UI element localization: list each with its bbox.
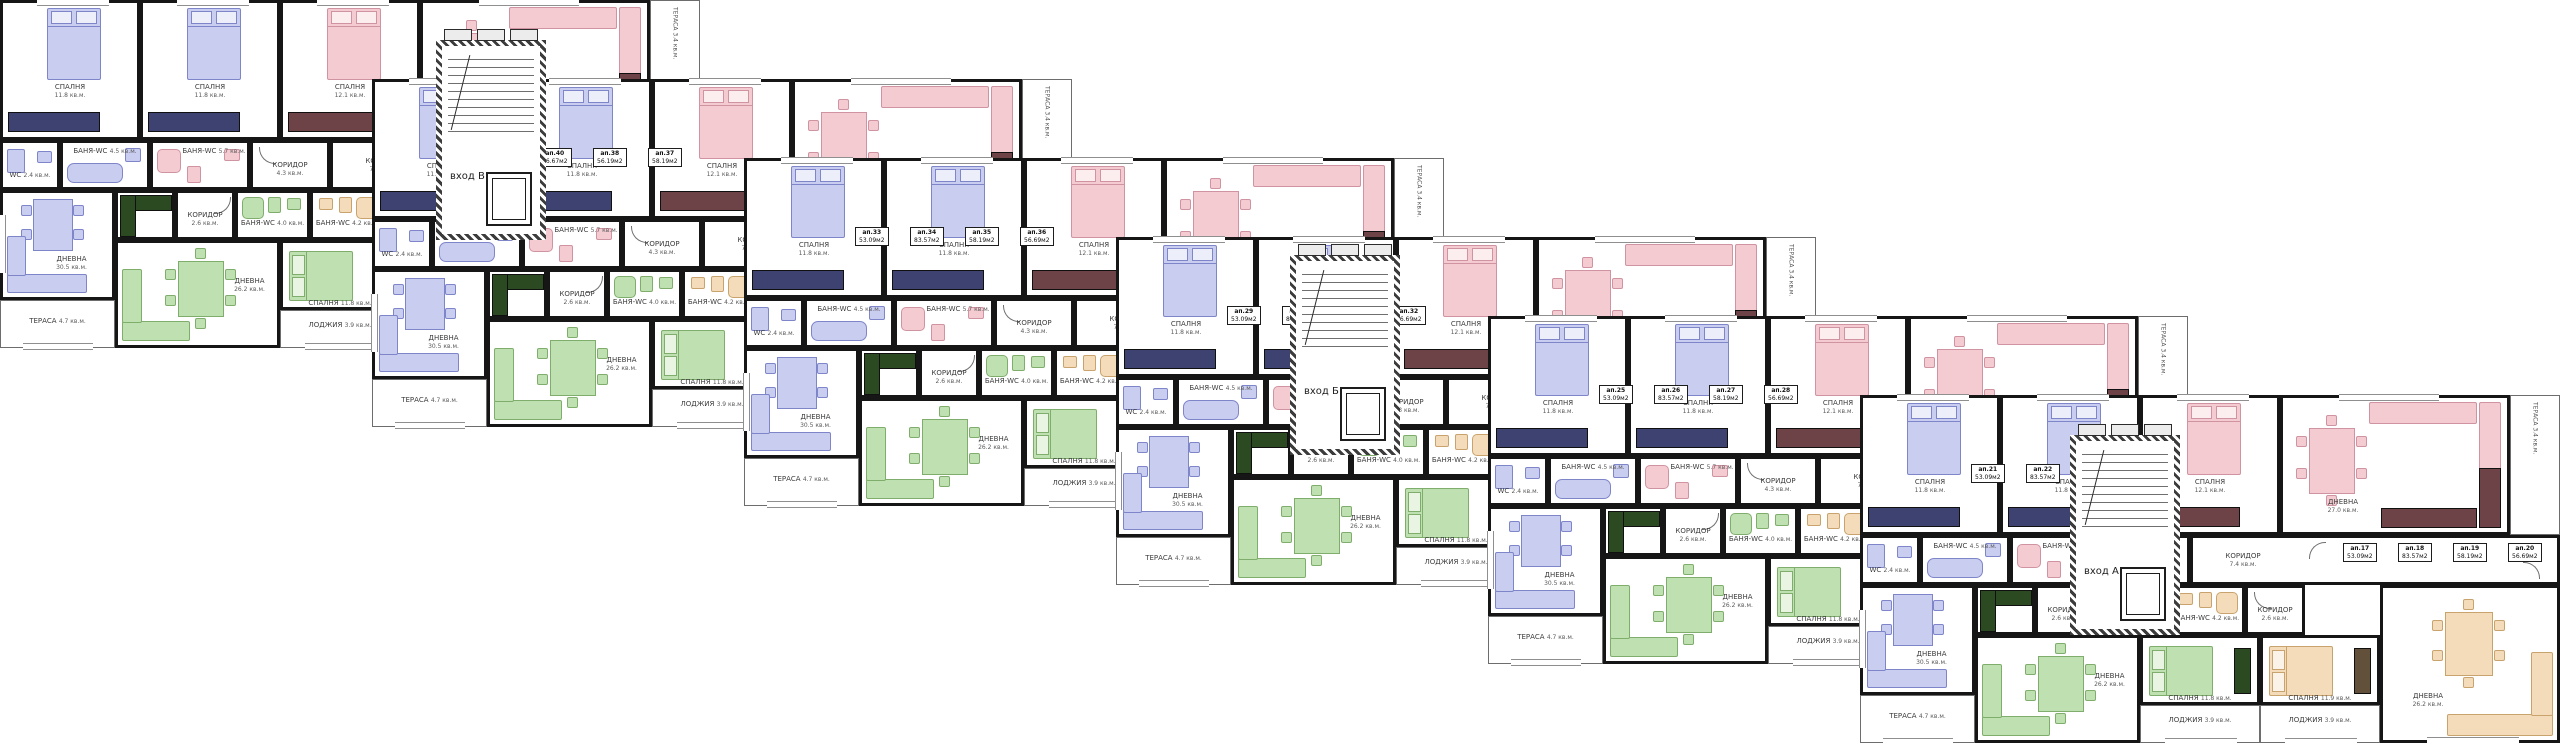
room-label: СПАЛНЯ xyxy=(1543,399,1573,407)
toilet-icon xyxy=(2199,592,2212,608)
room-bathroom: БАНЯ-WC 4.5 кв.м. xyxy=(1920,535,2010,585)
room-label: ДНЕВНА xyxy=(1350,514,1380,522)
bed-icon xyxy=(791,166,845,238)
room-bathroom: БАНЯ-WC 4.5 кв.м. xyxy=(1548,456,1638,506)
sink-icon xyxy=(1613,464,1629,478)
toilet-icon xyxy=(751,307,769,331)
room-bedroom: СПАЛНЯ 11.8 кв.м. xyxy=(2140,635,2260,705)
room-area: 4.0 кв.м. xyxy=(277,220,304,227)
room-bathroom: БАНЯ-WC 5.7 кв.м. xyxy=(894,298,994,348)
room-area: 26.2 кв.м. xyxy=(606,365,637,372)
sink-icon xyxy=(409,230,424,242)
sink-icon xyxy=(319,198,333,210)
chair-icon xyxy=(1881,600,1892,611)
room-bathroom: БАНЯ-WC 4.0 кв.м. xyxy=(235,190,310,240)
window xyxy=(1805,315,1877,322)
chair-icon xyxy=(2494,620,2505,631)
room-living: ДНЕВНА30.5 кв.м. xyxy=(744,348,859,458)
stair-core: вход Б xyxy=(1290,255,1400,455)
toilet-icon xyxy=(7,149,25,173)
apartment-stamp: ап.3656.69м2 xyxy=(1020,227,1054,246)
bathtub-icon xyxy=(1927,558,1983,578)
dining-table-icon xyxy=(1893,594,1933,646)
room-label: БАНЯ-WC xyxy=(1561,463,1595,471)
chair-icon xyxy=(537,374,548,385)
room-label: БАНЯ-WC xyxy=(554,226,588,234)
room-label: СПАЛНЯ xyxy=(1079,241,1109,249)
window xyxy=(2285,738,2357,743)
room-bathroom: БАНЯ-WC 5.7 кв.м. xyxy=(150,140,250,190)
chair-icon xyxy=(567,397,578,408)
wardrobe-icon xyxy=(752,270,844,290)
elevator-icon xyxy=(486,172,532,226)
room-corridor: КОРИДОР4.3 кв.м. xyxy=(250,140,330,190)
window xyxy=(1487,531,1494,589)
room-area: 26.2 кв.м. xyxy=(234,286,265,293)
toilet-icon xyxy=(379,228,397,252)
room-area: 12.1 кв.м. xyxy=(335,92,366,99)
window xyxy=(743,373,750,431)
room-area: 2.6 кв.м. xyxy=(936,378,963,385)
room-terrace: ТЕРАСА 4.7 кв.м. xyxy=(744,458,859,506)
chair-icon xyxy=(939,476,950,487)
room-label: СПАЛНЯ xyxy=(1451,320,1481,328)
shower-icon xyxy=(901,307,925,331)
room-area: 11.8 кв.м. xyxy=(1457,537,1488,544)
chair-icon xyxy=(445,308,456,319)
room-label: ТЕРАСА xyxy=(672,7,679,30)
sink-icon xyxy=(968,307,984,319)
room-living: ДНЕВНА26.2 кв.м. xyxy=(115,240,280,348)
room-area: 12.1 кв.м. xyxy=(1079,250,1110,257)
apartment-stamp: ап.2153.09м2 xyxy=(1971,464,2005,483)
chair-icon xyxy=(1210,178,1221,189)
room-area: 4.7 кв.м. xyxy=(1547,634,1574,641)
room-area: 11.8 кв.м. xyxy=(2201,695,2232,702)
window xyxy=(1153,236,1225,243)
room-label: ДНЕВНА xyxy=(1172,492,1202,500)
sink-icon xyxy=(1985,543,2001,557)
room-corridor: КОРИДОР2.6 кв.м. xyxy=(547,269,607,319)
chair-icon xyxy=(969,453,980,464)
chair-icon xyxy=(969,427,980,438)
apartment-stamp: ап.1883.57м2 xyxy=(2398,543,2432,562)
bed-icon xyxy=(327,8,381,80)
room-living: ДНЕВНА26.2 кв.м. xyxy=(2380,585,2560,743)
room-corridor: КОРИДОР2.6 кв.м. xyxy=(175,190,235,240)
room-living: ДНЕВНА30.5 кв.м. xyxy=(1860,585,1975,695)
room-area: 2.6 кв.м. xyxy=(1680,536,1707,543)
toilet-icon xyxy=(931,324,945,341)
chair-icon xyxy=(2494,650,2505,661)
room-area: 11.8 кв.м. xyxy=(1915,487,1946,494)
room-area: 3.9 кв.м. xyxy=(345,322,372,329)
window xyxy=(1115,452,1122,510)
door-arc xyxy=(1003,305,1020,322)
apartment-stamp: ап.2283.57м2 xyxy=(2026,464,2060,483)
stairs-icon xyxy=(1302,267,1388,351)
room-area: 11.8 кв.м. xyxy=(1829,616,1860,623)
room-living: ДНЕВНА30.5 кв.м. xyxy=(1488,506,1603,616)
bed-icon xyxy=(1033,409,1097,459)
chair-icon xyxy=(2326,415,2337,426)
room-corridor: КОРИДОР4.3 кв.м. xyxy=(1738,456,1818,506)
room-area: 2.4 кв.м. xyxy=(24,172,51,179)
window xyxy=(371,294,378,352)
window xyxy=(395,422,465,429)
room-living: ДНЕВНА30.5 кв.м. xyxy=(1116,427,1231,537)
window xyxy=(1525,315,1597,322)
chair-icon xyxy=(2432,620,2443,631)
room-area: 26.2 кв.м. xyxy=(978,444,1009,451)
toilet-icon xyxy=(640,276,653,292)
sink-icon xyxy=(596,228,612,240)
sink-icon xyxy=(869,306,885,320)
chair-icon xyxy=(1561,545,1572,556)
window xyxy=(1139,580,1209,587)
chair-icon xyxy=(1582,257,1593,268)
stairs-icon xyxy=(2082,447,2168,531)
room-label: БАНЯ-WC xyxy=(1432,456,1466,464)
sink-icon xyxy=(781,309,796,321)
room-bathroom: БАНЯ-WC 4.5 кв.м. xyxy=(1176,377,1266,427)
room-corridor: КОРИДОР4.3 кв.м. xyxy=(994,298,1074,348)
chair-icon xyxy=(73,229,84,240)
shower-icon xyxy=(986,355,1008,377)
room-label: ЛОДЖИЯ xyxy=(308,321,342,329)
wardrobe-icon xyxy=(1868,507,1960,527)
apartment-stamp: ап.3483.57м2 xyxy=(910,227,944,246)
room-label: ТЕРАСА xyxy=(1517,633,1544,641)
sink-icon xyxy=(1775,514,1789,526)
toilet-icon xyxy=(1083,355,1096,371)
room-corridor: КОРИДОР4.3 кв.м. xyxy=(622,219,702,269)
window xyxy=(177,0,249,6)
room-label: БАНЯ-WC xyxy=(1189,384,1223,392)
shower-icon xyxy=(614,276,636,298)
chair-icon xyxy=(1561,521,1572,532)
room-label: БАНЯ-WC xyxy=(1933,542,1967,550)
toilet-icon xyxy=(1123,386,1141,410)
room-loggia: ЛОДЖИЯ 3.9 кв.м. xyxy=(2260,705,2380,743)
chair-icon xyxy=(2055,643,2066,654)
wardrobe-icon xyxy=(1636,428,1728,448)
chair-icon xyxy=(165,269,176,280)
shower-icon xyxy=(1730,513,1752,535)
dining-table-icon xyxy=(1521,515,1561,567)
room-area: 2.4 кв.м. xyxy=(768,330,795,337)
room-terrace: ТЕРАСА 4.7 кв.м. xyxy=(1860,695,1975,743)
apartment-stamp: ап.2758.19м2 xyxy=(1709,385,1743,404)
room-label: СПАЛНЯ xyxy=(707,162,737,170)
chair-icon xyxy=(225,269,236,280)
room-label: ДНЕВНА xyxy=(428,334,458,342)
room-corridor: КОРИДОР2.6 кв.м. xyxy=(919,348,979,398)
room-area: 2.4 кв.м. xyxy=(396,251,423,258)
chair-icon xyxy=(1189,466,1200,477)
toilet-icon xyxy=(339,197,352,213)
room-area: 2.6 кв.м. xyxy=(2262,615,2289,622)
room-area: 4.3 кв.м. xyxy=(277,170,304,177)
room-bedroom: СПАЛНЯ 11.9 кв.м. xyxy=(2260,635,2380,705)
room-area: 30.5 кв.м. xyxy=(56,264,87,271)
dining-table-icon xyxy=(1294,498,1340,554)
chair-icon xyxy=(1984,357,1995,368)
entrance-canopy xyxy=(2078,424,2172,436)
room-terrace: ТЕРАСА 4.7 кв.м. xyxy=(1488,616,1603,664)
chair-icon xyxy=(1281,506,1292,517)
wardrobe-icon xyxy=(148,112,240,132)
room-label: ЛОДЖИЯ xyxy=(2168,716,2202,724)
room-area: 11.8 кв.м. xyxy=(1543,408,1574,415)
window xyxy=(1293,236,1365,243)
dining-table-icon xyxy=(178,261,224,317)
sink-icon xyxy=(659,277,673,289)
room-area: 12.1 кв.м. xyxy=(1451,329,1482,336)
room-area: 11.8 кв.м. xyxy=(567,171,598,178)
bed-icon xyxy=(1405,488,1469,538)
door-arc xyxy=(631,226,648,243)
chair-icon xyxy=(537,348,548,359)
room-area: 4.0 кв.м. xyxy=(1765,536,1792,543)
room-label: СПАЛНЯ xyxy=(55,83,85,91)
sink-icon xyxy=(224,149,240,161)
room-label: БАНЯ-WC xyxy=(1670,463,1704,471)
sink-icon xyxy=(1241,385,1257,399)
room-area: 12.1 кв.м. xyxy=(1823,408,1854,415)
room-label: БАНЯ-WC xyxy=(1804,535,1838,543)
kitchen-counter-icon xyxy=(1980,590,1996,632)
chair-icon xyxy=(1341,532,1352,543)
window xyxy=(1897,394,1969,401)
window xyxy=(1665,315,1737,322)
sink-icon xyxy=(1525,467,1540,479)
room-area: 11.8 кв.м. xyxy=(55,92,86,99)
door-arc xyxy=(1747,463,1764,480)
room-living: ДНЕВНА26.2 кв.м. xyxy=(1231,477,1396,585)
room-label: КОРИДОР xyxy=(272,161,307,169)
window xyxy=(479,0,579,6)
room-kitchen xyxy=(1975,585,2035,635)
room-kitchen xyxy=(487,269,547,319)
chair-icon xyxy=(2025,690,2036,701)
wardrobe-icon xyxy=(8,112,100,132)
bed-icon xyxy=(2149,646,2213,696)
toilet-icon xyxy=(2047,561,2061,578)
chair-icon xyxy=(817,363,828,374)
wardrobe-icon xyxy=(892,270,984,290)
chair-icon xyxy=(1653,585,1664,596)
window xyxy=(1859,610,1866,668)
room-label: ДНЕВНА xyxy=(234,277,264,285)
window xyxy=(549,78,621,85)
room-bathroom: БАНЯ-WC 4.0 кв.м. xyxy=(1723,506,1798,556)
entrance-label: вход А xyxy=(2084,566,2119,577)
room-label: БАНЯ-WC xyxy=(1060,377,1094,385)
chair-icon xyxy=(195,318,206,329)
room-area: 2.4 кв.м. xyxy=(1140,409,1167,416)
room-label: ДНЕВНА xyxy=(800,413,830,421)
sink-icon xyxy=(1712,465,1728,477)
room-label: ЛОДЖИЯ xyxy=(2288,716,2322,724)
room-area: 11.8 кв.м. xyxy=(1683,408,1714,415)
sink-icon xyxy=(1031,356,1045,368)
room-area: 11.8 кв.м. xyxy=(195,92,226,99)
chair-icon xyxy=(808,120,819,131)
window xyxy=(1511,659,1581,666)
room-area: 11.8 кв.м. xyxy=(799,250,830,257)
chair-icon xyxy=(1612,278,1623,289)
room-kitchen xyxy=(859,348,919,398)
dining-table-icon xyxy=(1666,577,1712,633)
chair-icon xyxy=(1933,600,1944,611)
room-bathroom: БАНЯ-WC 5.7 кв.м. xyxy=(1638,456,1738,506)
room-label: БАНЯ-WC xyxy=(985,377,1019,385)
entrance-canopy xyxy=(1298,244,1392,256)
bathtub-icon xyxy=(811,321,867,341)
chair-icon xyxy=(2085,664,2096,675)
room-area: 30.5 кв.м. xyxy=(428,343,459,350)
apartment-stamp: ап.3856.19м2 xyxy=(593,148,627,167)
toilet-icon xyxy=(559,245,573,262)
dining-table-icon xyxy=(405,278,445,330)
chair-icon xyxy=(1189,442,1200,453)
room-label: ДНЕВНА xyxy=(2413,692,2443,700)
chair-icon xyxy=(165,295,176,306)
chair-icon xyxy=(1311,555,1322,566)
dining-table-icon xyxy=(777,357,817,409)
dining-table-icon xyxy=(550,340,596,396)
wardrobe-icon xyxy=(660,191,752,211)
wardrobe-icon xyxy=(1496,428,1588,448)
window xyxy=(37,0,109,6)
room-label: ДНЕВНА xyxy=(606,356,636,364)
room-area: 2.6 кв.м. xyxy=(1308,457,1335,464)
room-label: ТЕРАСА xyxy=(1788,244,1795,267)
room-area: 2.4 кв.м. xyxy=(1884,567,1911,574)
wardrobe-icon xyxy=(1032,270,1124,290)
room-area: 11.8 кв.м. xyxy=(341,300,372,307)
room-wc: WC 2.4 кв.м. xyxy=(744,298,804,348)
stair-core: вход В xyxy=(436,40,546,240)
chair-icon xyxy=(1683,634,1694,645)
room-area: 27.0 кв.м. xyxy=(2328,507,2359,514)
sink-icon xyxy=(691,277,705,289)
chair-icon xyxy=(939,406,950,417)
window xyxy=(2177,394,2249,401)
window xyxy=(0,215,6,273)
window xyxy=(921,157,993,164)
chair-icon xyxy=(2356,436,2367,447)
bed-icon xyxy=(661,330,725,380)
room-area: 4.2 кв.м. xyxy=(2212,615,2239,622)
dining-table-icon xyxy=(2038,656,2084,712)
room-label: БАНЯ-WC xyxy=(613,298,647,306)
window xyxy=(23,343,93,350)
floor-plan-canvas: СПАЛНЯ11.8 кв.м. СПАЛНЯ11.8 кв.м. СПАЛНЯ… xyxy=(0,0,2560,743)
wardrobe-icon xyxy=(2234,648,2251,694)
chair-icon xyxy=(1683,564,1694,575)
room-corridor: КОРИДОР2.6 кв.м. xyxy=(2245,585,2305,635)
room-area: 30.5 кв.м. xyxy=(1544,580,1575,587)
chair-icon xyxy=(1713,585,1724,596)
room-living: ДНЕВНА26.2 кв.м. xyxy=(1975,635,2140,743)
room-wc: WC 2.4 кв.м. xyxy=(1488,456,1548,506)
shower-icon xyxy=(157,149,181,173)
chair-icon xyxy=(1311,485,1322,496)
room-wc: WC 2.4 кв.м. xyxy=(372,219,432,269)
bed-icon xyxy=(1535,324,1589,396)
room-label: КОРИДОР xyxy=(1016,319,1051,327)
room-label: СПАЛНЯ xyxy=(1915,478,1945,486)
shower-icon xyxy=(1645,465,1669,489)
room-label: СПАЛНЯ xyxy=(195,83,225,91)
room-terrace: ТЕРАСА 4.7 кв.м. xyxy=(0,300,115,348)
door-arc xyxy=(2309,542,2326,559)
door-arc xyxy=(2523,562,2540,579)
shower-icon xyxy=(242,197,264,219)
room-kitchen xyxy=(1231,427,1291,477)
window xyxy=(317,0,389,6)
room-area: 11.8 кв.м. xyxy=(939,250,970,257)
room-area: 3.4 кв.м. xyxy=(1416,190,1423,217)
shower-icon xyxy=(2017,544,2041,568)
dining-table-icon xyxy=(33,199,73,251)
entrance-label: вход Б xyxy=(1304,386,1339,397)
room-wc: WC 2.4 кв.м. xyxy=(1860,535,1920,585)
room-label: ЛОДЖИЯ xyxy=(1052,479,1086,487)
room-area: 11.9 кв.м. xyxy=(2321,695,2352,702)
apartment-stamp: ап.2553.09м2 xyxy=(1599,385,1633,404)
room-bedroom: СПАЛНЯ11.8 кв.м. xyxy=(140,0,280,140)
room-label: ТЕРАСА xyxy=(29,317,56,325)
room-area: 26.2 кв.м. xyxy=(2094,681,2125,688)
window xyxy=(2165,738,2237,743)
bed-icon xyxy=(1815,324,1869,396)
room-area: 4.7 кв.м. xyxy=(59,318,86,325)
room-wc: WC 2.4 кв.м. xyxy=(0,140,60,190)
room-area: 3.4 кв.м. xyxy=(1044,111,1051,138)
chair-icon xyxy=(2432,650,2443,661)
kitchen-counter-icon xyxy=(120,195,136,237)
toilet-icon xyxy=(1495,465,1513,489)
room-area: 12.1 кв.м. xyxy=(707,171,738,178)
bed-icon xyxy=(1071,166,1125,238)
entrance-label: вход В xyxy=(450,171,485,182)
room-area: 3.9 кв.м. xyxy=(1089,480,1116,487)
room-kitchen xyxy=(115,190,175,240)
room-area: 12.1 кв.м. xyxy=(2195,487,2226,494)
apartment-stamp: ап.2683.57м2 xyxy=(1654,385,1688,404)
room-living: ДНЕВНА30.5 кв.м. xyxy=(0,190,115,300)
door-arc xyxy=(958,355,975,372)
kitchen-counter-icon xyxy=(1608,511,1624,553)
room-area: 7.4 кв.м. xyxy=(2230,561,2257,568)
bed-icon xyxy=(699,87,753,159)
room-terrace: ТЕРАСА 4.7 кв.м. xyxy=(1116,537,1231,585)
room-label: ТЕРАСА xyxy=(1416,165,1423,188)
room-label: ТЕРАСА xyxy=(1889,712,1916,720)
chair-icon xyxy=(393,284,404,295)
entrance-canopy xyxy=(444,29,538,41)
room-living: ДНЕВНА26.2 кв.м. xyxy=(1603,556,1768,664)
room-area: 4.7 кв.м. xyxy=(1919,713,1946,720)
wardrobe-icon xyxy=(2354,648,2371,694)
room-area: 4.3 кв.м. xyxy=(1765,486,1792,493)
chair-icon xyxy=(1509,521,1520,532)
bed-icon xyxy=(289,251,353,301)
window xyxy=(1061,157,1133,164)
